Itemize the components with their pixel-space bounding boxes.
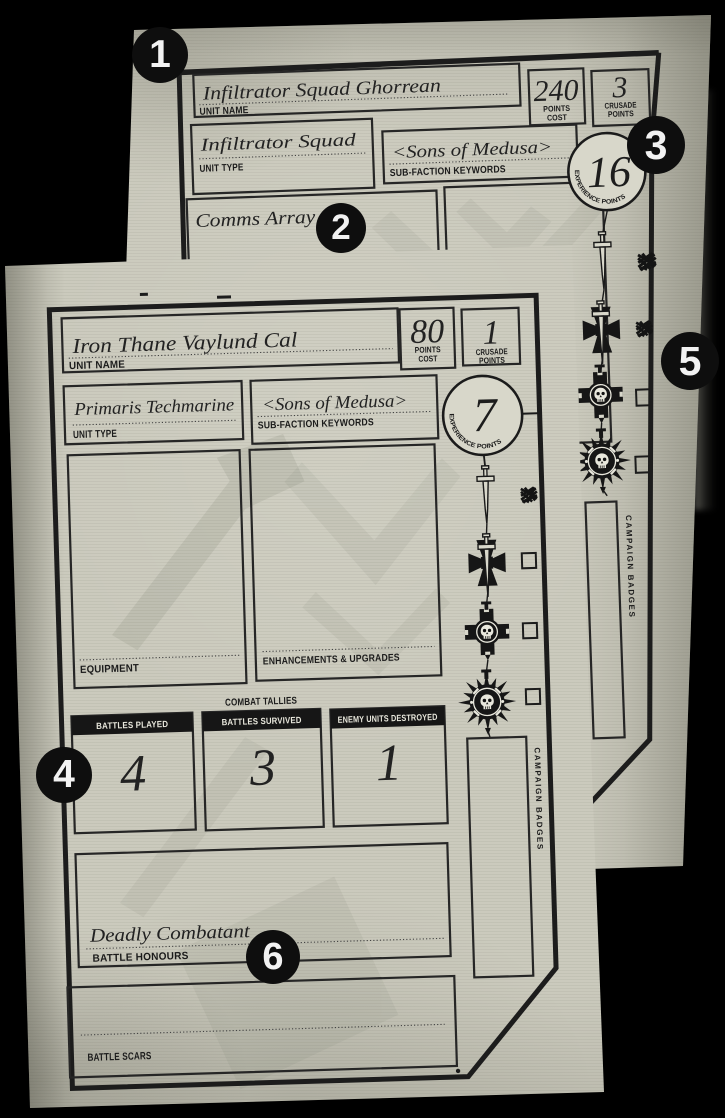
svg-text:UNIT TYPE: UNIT TYPE [199,162,243,175]
svg-text:4: 4 [119,745,147,803]
svg-text:UNIT NAME: UNIT NAME [69,359,125,373]
svg-text:240: 240 [533,74,579,109]
svg-text:COMBAT TALLIES: COMBAT TALLIES [225,696,297,709]
svg-text:POINTS: POINTS [608,109,635,119]
svg-text:Primaris Techmarine: Primaris Techmarine [73,394,235,419]
svg-text:Infiltrator Squad: Infiltrator Squad [199,129,357,154]
svg-text:EQUIPMENT: EQUIPMENT [80,662,140,676]
svg-text:Infiltrator Squad Ghorrean: Infiltrator Squad Ghorrean [201,75,441,104]
svg-text:SUB-FACTION KEYWORDS: SUB-FACTION KEYWORDS [258,417,374,431]
svg-text:BATTLES PLAYED: BATTLES PLAYED [96,719,169,731]
svg-text:<Sons of Medusa>: <Sons of Medusa> [262,390,408,414]
svg-text:7: 7 [472,388,500,442]
svg-text:CAMPAIGN BADGES: CAMPAIGN BADGES [624,515,637,619]
svg-text:Iron Thane Vaylund Cal: Iron Thane Vaylund Cal [71,327,298,358]
svg-text:1: 1 [375,734,403,792]
svg-text:SUB-FACTION KEYWORDS: SUB-FACTION KEYWORDS [390,164,506,179]
svg-text:BATTLE SCARS: BATTLE SCARS [87,1050,151,1064]
svg-text:UNIT TYPE: UNIT TYPE [73,428,117,441]
svg-text:Comms Array: Comms Array [195,207,316,232]
svg-text:CAMPAIGN BADGES: CAMPAIGN BADGES [533,747,545,851]
svg-text:BATTLE HONOURS: BATTLE HONOURS [92,950,188,965]
svg-text:COST: COST [547,113,567,123]
svg-text:3: 3 [611,71,628,105]
svg-text:COST: COST [418,353,438,364]
svg-text:3: 3 [248,739,277,797]
svg-text:<Sons of Medusa>: <Sons of Medusa> [392,137,553,163]
svg-text:POINTS: POINTS [479,355,506,366]
svg-text:UNIT NAME: UNIT NAME [199,105,248,118]
svg-text:16: 16 [586,147,632,198]
